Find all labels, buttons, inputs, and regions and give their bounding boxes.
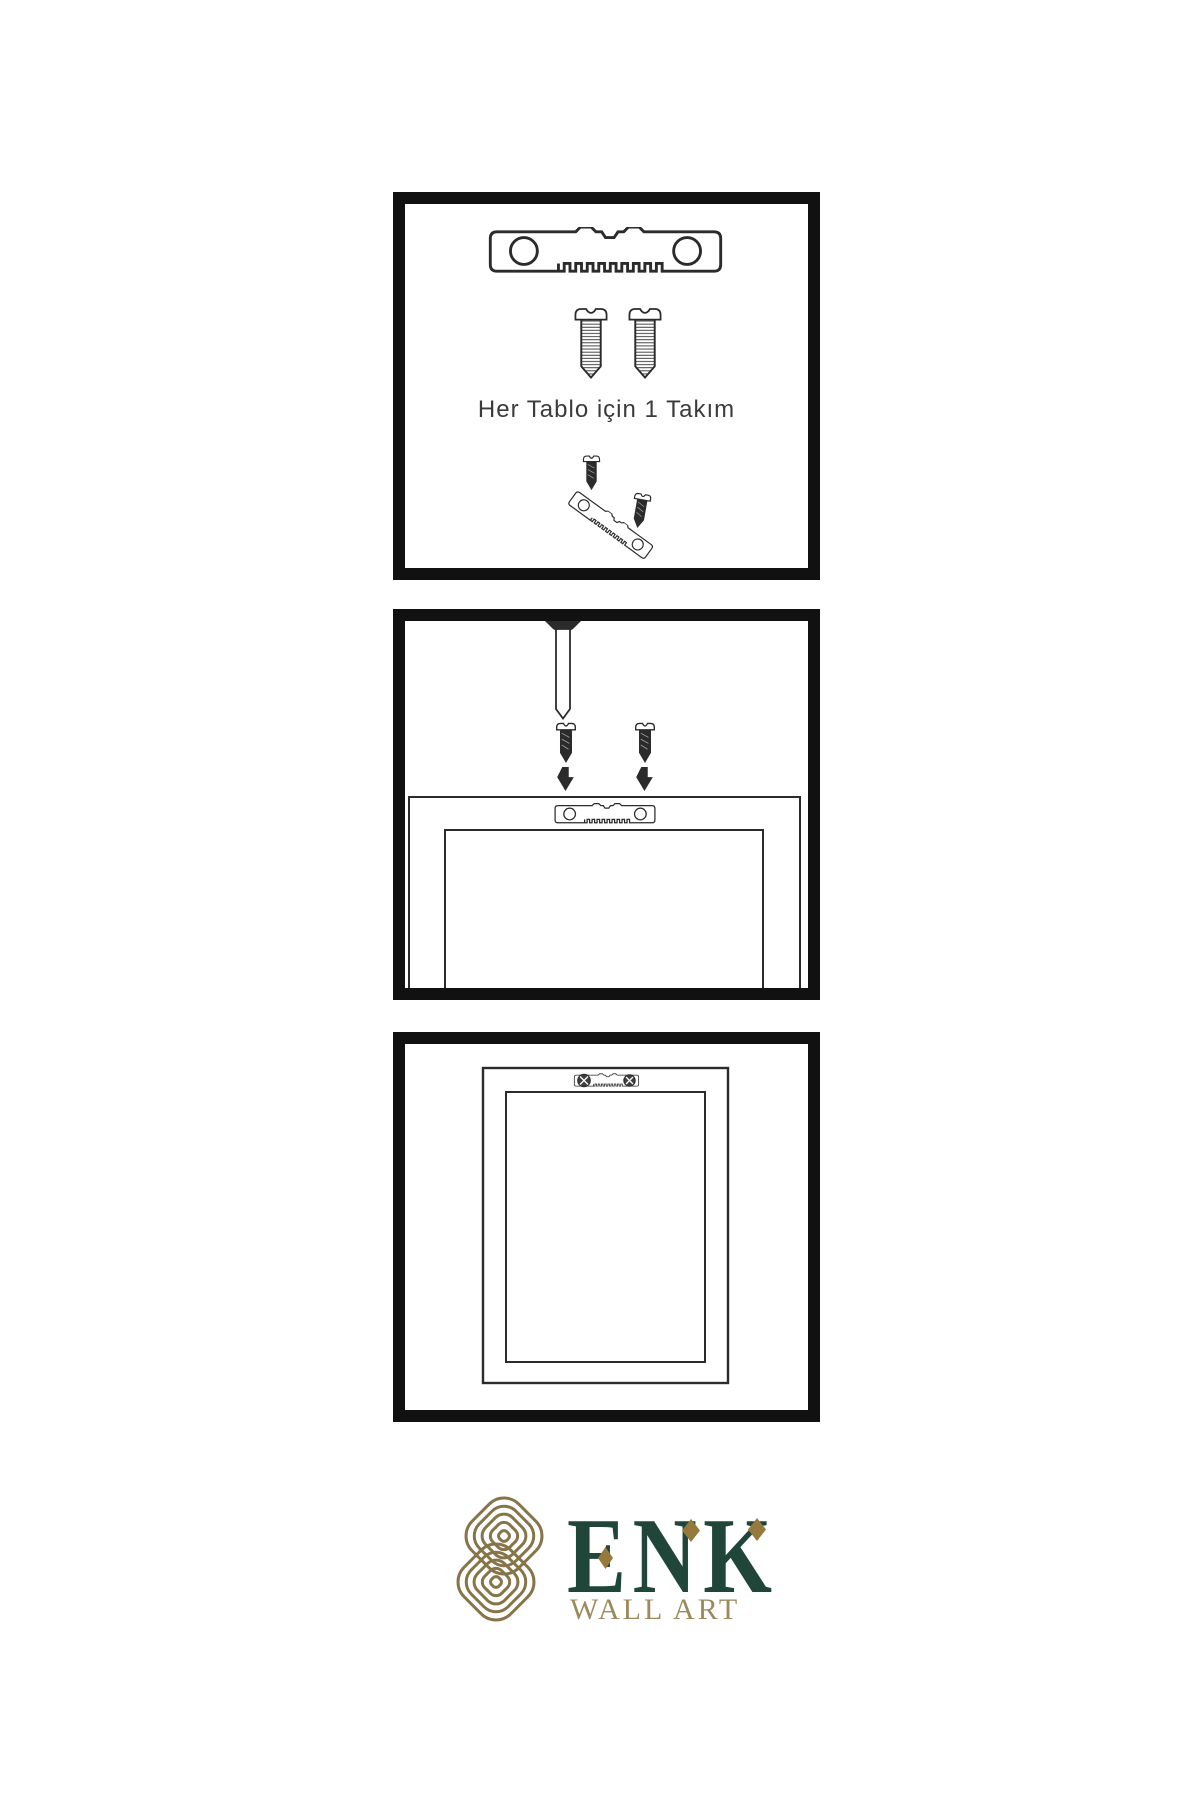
kit-contents-art [405, 204, 808, 568]
brand-tagline: WALL ART [570, 1593, 740, 1627]
screw-icon [636, 723, 655, 762]
wall-nail-icon [545, 621, 581, 719]
picture-frame-icon [483, 1068, 728, 1383]
kit-label: Her Tablo için 1 Takım [405, 396, 808, 424]
mounting-screw-icon [629, 309, 660, 378]
frame-back-icon [409, 797, 800, 988]
mounting-step-art [405, 621, 808, 988]
mounting-screw-icon [575, 309, 606, 378]
panel-kit-contents: Her Tablo için 1 Takım [393, 192, 820, 580]
arrow-down-icon [557, 767, 574, 791]
hanger-assembly-icon [568, 456, 655, 559]
panel-hung-frame [393, 1032, 820, 1422]
panel-mounting-step [393, 609, 820, 1000]
arrow-down-icon [636, 767, 653, 791]
screw-icon [557, 723, 576, 762]
brand-logo: ENK WALL ART [437, 1486, 817, 1636]
sawtooth-hanger-icon [490, 227, 720, 271]
knot-icon [440, 1488, 562, 1630]
hung-frame-art [405, 1044, 808, 1410]
product-instruction-image: { "colors": { "background": "#ffffff", "… [0, 0, 1200, 1800]
